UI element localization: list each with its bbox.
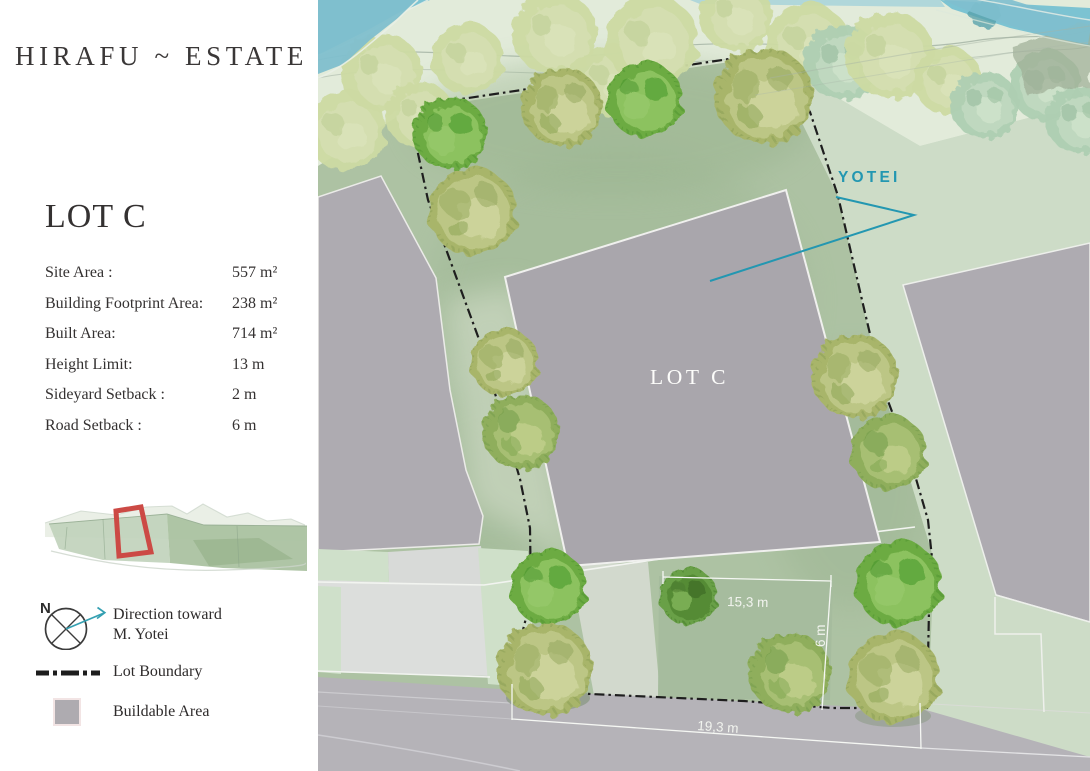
svg-text:15,3 m: 15,3 m <box>727 594 769 610</box>
svg-text:19,3 m: 19,3 m <box>697 718 739 736</box>
svg-text:YOTEI: YOTEI <box>838 169 901 186</box>
svg-text:LOT C: LOT C <box>650 365 729 389</box>
svg-text:N: N <box>40 600 51 617</box>
svg-text:6 m: 6 m <box>813 624 828 647</box>
